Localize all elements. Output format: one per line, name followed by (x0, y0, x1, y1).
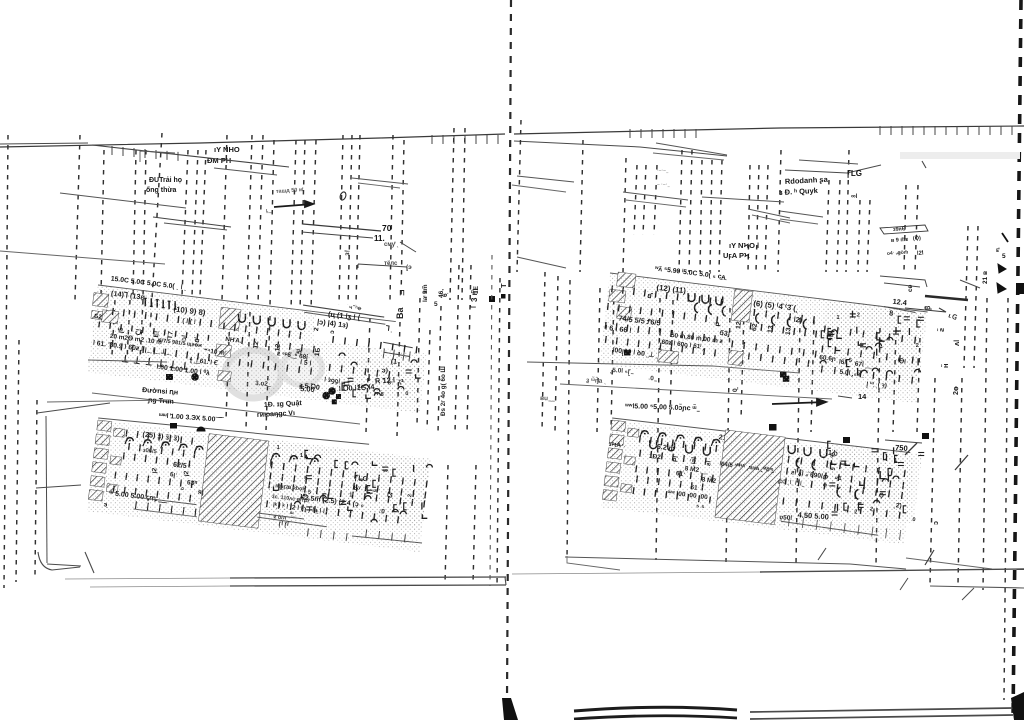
svg-text:21 ʙ: 21 ʙ (982, 271, 989, 284)
svg-text:1: 1 (894, 458, 897, 464)
svg-text:ɜ̠ ᵚ̃ŋ̃а ˎ: ɜ̠ ᵚ̃ŋ̃а ˎ (586, 376, 607, 385)
svg-text:⊐: ⊐ (397, 289, 406, 296)
svg-text:Đs 2г 4o g( 6o Ш: Đs 2г 4o g( 6o Ш (440, 366, 447, 416)
svg-text:5: 5 (830, 454, 833, 460)
svg-text:ʙu ̠ ̣ ̠: ʙu ̠ ̣ ̠ (540, 395, 556, 403)
svg-text:1: 1 (300, 453, 303, 459)
svg-text:ıY NHO: ıY NHO (214, 145, 240, 154)
svg-text:ɜ9ʌꞒ: ɜ9ʌꞒ (893, 225, 906, 233)
svg-text:ꞅ: ꞅ (469, 305, 476, 308)
svg-text:ʜ̃: ʜ̃ (941, 363, 950, 368)
svg-text:UϝA PϞ: UϝA PϞ (723, 251, 750, 260)
svg-text:5: 5 (1002, 253, 1006, 260)
svg-text:Ba: Ba (395, 307, 405, 319)
svg-text:– ·–· ̠: – ·–· ̠ (657, 182, 671, 188)
svg-text:ᴄᴆ: ᴄᴆ (907, 284, 914, 292)
svg-text:ꞵ̃: ꞵ̃ (924, 305, 932, 310)
svg-text:12.4: 12.4 (892, 297, 908, 308)
svg-text:2: 2 (857, 312, 860, 318)
svg-text:5: 5 (434, 301, 438, 308)
svg-text:ɔ: ɔ (933, 521, 940, 525)
svg-text:ʌǀ: ʌǀ (952, 340, 961, 346)
svg-text:1Е: 1Е (473, 285, 480, 294)
svg-text:ĐUTrải họ: ĐUTrải họ (149, 177, 182, 184)
svg-text:1: 1 (837, 315, 840, 321)
svg-text:8: 8 (381, 392, 384, 398)
svg-text:ʙ 9 m̃ᵶ: ʙ 9 m̃ᵶ (891, 237, 909, 244)
svg-text:5: 5 (849, 358, 852, 364)
svg-text:(э: (э (406, 264, 412, 271)
svg-text:ƨ̃: ƨ̃ (937, 328, 946, 332)
svg-text:∞ǀ: ∞ǀ (851, 193, 858, 200)
svg-text:(Ǫ̂): (Ǫ̂) (913, 234, 922, 242)
svg-text:1: 1 (277, 445, 280, 451)
svg-text:9: 9 (422, 290, 429, 294)
svg-text:ꞄLG: ꞄLG (847, 169, 862, 178)
svg-text:70: 70 (382, 223, 392, 233)
svg-text:2ꝋ: 2ꝋ (953, 385, 960, 395)
svg-text:ống thừa: ống thừa (146, 186, 176, 194)
svg-text:1: 1 (349, 493, 352, 499)
svg-text:Т: Т (499, 283, 508, 288)
svg-text:46,: 46, (438, 289, 445, 298)
svg-text:ǀ2̕ǀ: ǀ2̕ǀ (917, 251, 924, 257)
svg-text:ıY NϞO ǀ: ıY NϞO ǀ (729, 241, 759, 250)
svg-text:ɜ!: ɜ! (344, 250, 351, 256)
svg-text:сму̓ ˎ: сму̓ ˎ (384, 242, 399, 248)
svg-text:2: 2 (854, 509, 857, 515)
svg-text:2: 2 (916, 343, 919, 349)
